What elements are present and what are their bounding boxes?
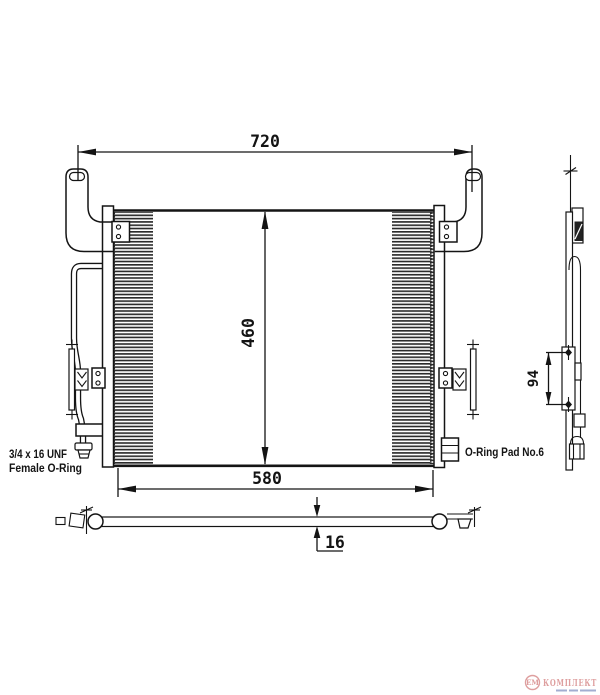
bracket-middle-left <box>66 340 105 420</box>
dimension-94: 94 <box>526 353 566 405</box>
left-fitting-nut <box>75 443 92 458</box>
bracket-plate <box>440 222 458 243</box>
oring-pad-fitting <box>442 438 459 461</box>
watermark-logo: ЕМ КОМПЛЕКТ <box>526 676 598 692</box>
bracket-plate <box>112 222 130 243</box>
side-core-bar <box>566 212 573 470</box>
dim-label-core-height: 460 <box>239 318 258 348</box>
bracket-slot-hole <box>466 173 481 181</box>
bracket-slot-hole <box>70 173 85 181</box>
side-mount-tab <box>575 363 581 380</box>
dim-label-core-width: 580 <box>252 469 282 488</box>
condenser-drawing: 720 460 580 3/4 x 16 UNF Female O-Ring O… <box>0 0 600 695</box>
right-fitting-label: O-Ring Pad No.6 <box>465 447 544 459</box>
fin-zone-right <box>392 212 430 464</box>
front-view: 720 460 580 3/4 x 16 UNF Female O-Ring O… <box>9 132 544 497</box>
side-lower-block <box>574 414 585 427</box>
dim-label-overall-width: 720 <box>250 132 280 151</box>
left-fitting-label-line2: Female O-Ring <box>9 463 82 475</box>
dimension-460: 460 <box>239 211 268 465</box>
dimension-580: 580 <box>118 468 433 497</box>
side-bottom-fitting <box>570 437 585 460</box>
dim-label-depth: 16 <box>325 533 345 552</box>
bracket-strap <box>69 349 75 410</box>
condenser-drawing-page: 720 460 580 3/4 x 16 UNF Female O-Ring O… <box>0 0 600 695</box>
side-plate-left <box>103 206 114 467</box>
dim-label-bracket-pitch: 94 <box>526 370 542 388</box>
logo-mark: ЕМ <box>526 678 539 687</box>
left-fitting-label-line1: 3/4 x 16 UNF <box>9 449 67 461</box>
logo-name: КОМПЛЕКТ <box>543 678 597 689</box>
bottom-core-bar <box>102 517 433 527</box>
bottom-view: 16 <box>56 497 481 552</box>
fin-zone-left <box>115 212 154 464</box>
side-plate-right <box>434 206 445 468</box>
bracket-strap <box>471 349 477 410</box>
side-view: 94 <box>526 155 585 470</box>
receiver-pipe <box>74 266 104 447</box>
logo-tagline <box>556 690 596 692</box>
dimension-720: 720 <box>78 132 472 192</box>
bottom-pipe-left <box>88 514 103 529</box>
bottom-right-hardware <box>447 507 481 528</box>
bottom-pipe-right <box>432 514 447 529</box>
